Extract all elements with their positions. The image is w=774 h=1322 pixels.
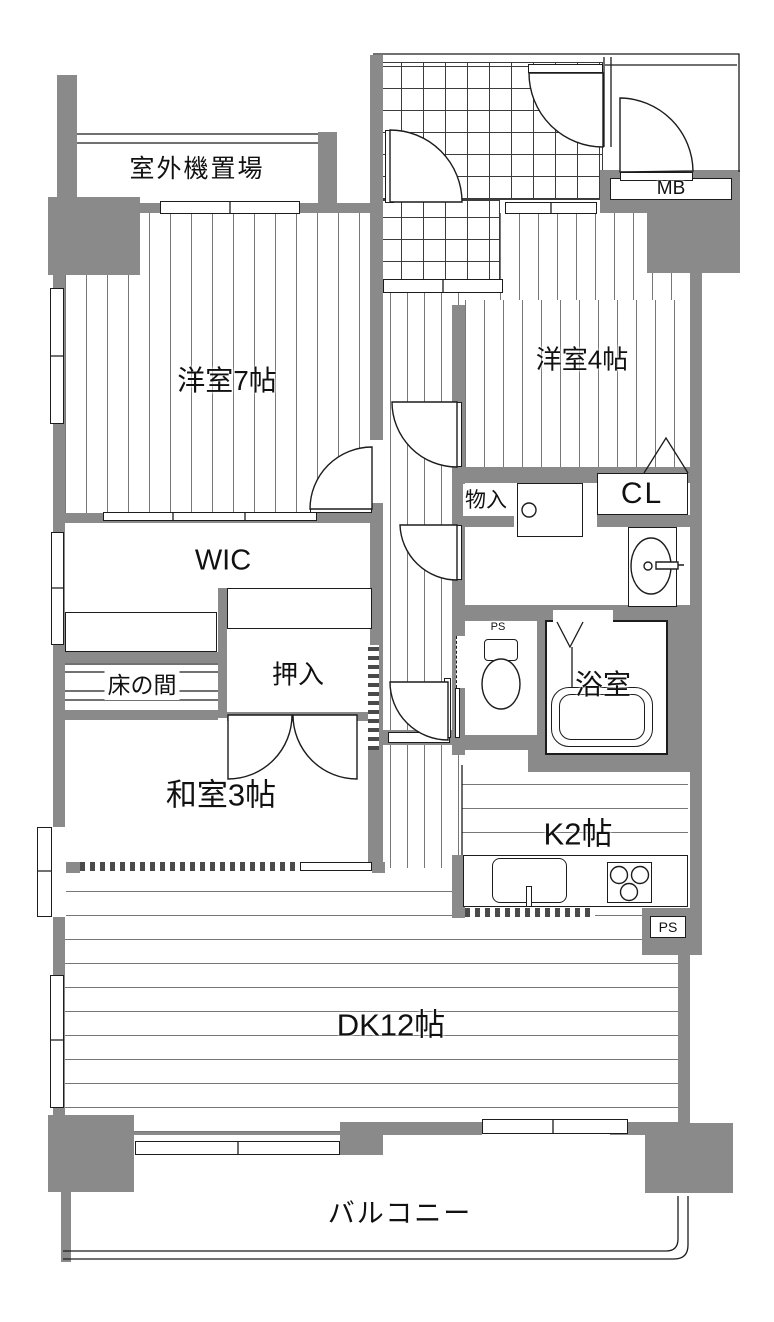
door-swing-shoe-closet (390, 130, 462, 202)
toilet-bowl (482, 659, 520, 709)
label-bedroom7: 洋室7帖 (177, 359, 277, 399)
label-ps-kitchen: PS (659, 919, 678, 935)
door-swing-washroom (400, 525, 457, 580)
outdoor-unit-edge-lines (77, 134, 318, 143)
door-swing-bedroom4 (392, 402, 457, 467)
door-swing-bedroom7 (310, 447, 372, 509)
label-balcony: バルコニー (328, 1192, 472, 1231)
washing-machine-drain (522, 503, 536, 517)
label-storage: 物入 (465, 484, 507, 514)
door-swing-front (529, 73, 603, 147)
door-swing-mb (620, 98, 693, 172)
stove-burner-1 (611, 867, 628, 884)
washbasin-drain (644, 562, 652, 570)
label-ps-toilet: PS (491, 621, 506, 633)
label-oshiire: 押入 (272, 655, 324, 692)
label-meter-box: MB (657, 178, 686, 200)
label-washitsu: 和室3帖 (166, 770, 276, 815)
label-wic: WIC (195, 545, 251, 578)
label-closet: CL (621, 477, 663, 511)
stove-burner-2 (632, 867, 649, 884)
stove-burner-3 (621, 884, 638, 901)
label-tokonoma: 床の間 (105, 666, 180, 700)
door-swing-dk (390, 682, 448, 740)
washbasin-faucet (656, 562, 684, 569)
label-outdoor-unit: 室外機置場 (129, 149, 264, 185)
label-dining-kitchen: DK12帖 (337, 1000, 446, 1045)
door-swing-oshiire-right (293, 715, 357, 779)
label-bedroom4: 洋室4帖 (536, 340, 628, 377)
closet-folding-door (644, 438, 688, 473)
label-kitchen: K2帖 (544, 809, 613, 854)
floor-plan: 室外機置場 洋室7帖 洋室4帖 WIC 床の間 押入 和室3帖 物入 CL 浴室… (0, 0, 774, 1322)
wic-opening-ticks (173, 512, 245, 521)
label-bathroom: 浴室 (575, 663, 631, 703)
